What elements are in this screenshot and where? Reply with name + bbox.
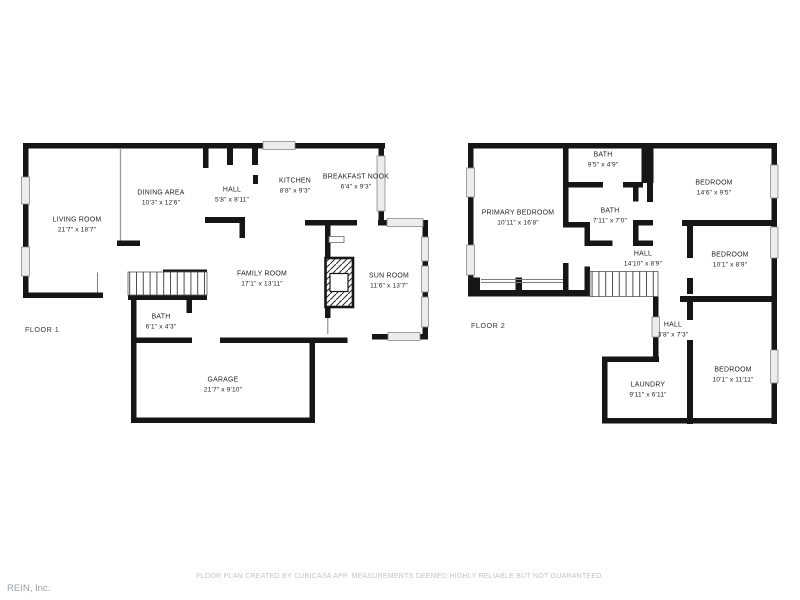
footer-disclaimer: FLOOR PLAN CREATED BY CUBICASA APP. MEAS… bbox=[0, 573, 800, 580]
floor-2-label: FLOOR 2 bbox=[471, 321, 505, 330]
room-name: LAUNDRY bbox=[629, 380, 666, 390]
room-dimensions: 10'1" x 8'9" bbox=[711, 261, 748, 270]
room-label: HALL14'10" x 8'9" bbox=[624, 249, 662, 268]
room-dimensions: 11'6" x 13'7" bbox=[369, 282, 409, 291]
room-name: BEDROOM bbox=[695, 178, 732, 188]
room-label: BATH7'11" x 7'0" bbox=[593, 206, 627, 225]
room-name: DINING AREA bbox=[137, 188, 184, 198]
room-label: GARAGE21'7" x 9'10" bbox=[204, 375, 242, 394]
room-name: HALL bbox=[215, 185, 249, 195]
floor-1-label: FLOOR 1 bbox=[25, 325, 59, 334]
room-label: SUN ROOM11'6" x 13'7" bbox=[369, 271, 409, 290]
room-label: FAMILY ROOM17'1" x 13'11" bbox=[237, 269, 287, 288]
room-label: PRIMARY BEDROOM10'11" x 16'8" bbox=[482, 208, 554, 227]
room-name: FAMILY ROOM bbox=[237, 269, 287, 279]
room-dimensions: 21'7" x 9'10" bbox=[204, 386, 242, 395]
fireplace-box bbox=[330, 274, 348, 292]
room-dimensions: 10'11" x 16'8" bbox=[482, 219, 554, 228]
room-name: PRIMARY BEDROOM bbox=[482, 208, 554, 218]
room-dimensions: 5'8" x 8'11" bbox=[215, 196, 249, 205]
room-name: SUN ROOM bbox=[369, 271, 409, 281]
room-dimensions: 17'1" x 13'11" bbox=[237, 280, 287, 289]
room-label: DINING AREA10'3" x 12'6" bbox=[137, 188, 184, 207]
floor-1-stairs bbox=[128, 272, 207, 295]
room-name: BATH bbox=[146, 312, 177, 322]
room-label: BEDROOM10'1" x 11'11" bbox=[712, 365, 753, 384]
room-dimensions: 9'11" x 6'11" bbox=[629, 391, 666, 400]
room-name: LIVING ROOM bbox=[53, 215, 102, 225]
room-label: BEDROOM10'1" x 8'9" bbox=[711, 250, 748, 269]
room-name: GARAGE bbox=[204, 375, 242, 385]
room-label: BEDROOM14'6" x 9'5" bbox=[695, 178, 732, 197]
room-name: BREAKFAST NOOK bbox=[323, 172, 389, 182]
room-dimensions: 3'8" x 7'3" bbox=[658, 331, 689, 340]
room-dimensions: 14'6" x 9'5" bbox=[695, 189, 732, 198]
room-dimensions: 14'10" x 8'9" bbox=[624, 260, 662, 269]
floorplan-page: LIVING ROOM21'7" x 18'7"DINING AREA10'3"… bbox=[0, 0, 800, 600]
room-name: BEDROOM bbox=[712, 365, 753, 375]
room-dimensions: 21'7" x 18'7" bbox=[53, 226, 102, 235]
rein-logo-text: REIN, Inc. bbox=[7, 583, 50, 594]
room-name: HALL bbox=[658, 320, 689, 330]
room-label: LAUNDRY9'11" x 6'11" bbox=[629, 380, 666, 399]
room-label: LIVING ROOM21'7" x 18'7" bbox=[53, 215, 102, 234]
room-dimensions: 10'1" x 11'11" bbox=[712, 376, 753, 385]
room-dimensions: 6'4" x 9'3" bbox=[323, 183, 389, 192]
room-dimensions: 7'11" x 7'0" bbox=[593, 217, 627, 226]
room-label: HALL3'8" x 7'3" bbox=[658, 320, 689, 339]
room-name: BATH bbox=[593, 206, 627, 216]
floor-1-windows bbox=[22, 142, 429, 341]
floorplan-drawing bbox=[0, 0, 800, 600]
room-name: KITCHEN bbox=[279, 176, 311, 186]
sunroom-door-panel bbox=[329, 237, 344, 243]
room-label: BREAKFAST NOOK6'4" x 9'3" bbox=[323, 172, 389, 191]
room-name: BATH bbox=[588, 150, 619, 160]
room-label: BATH9'5" x 4'9" bbox=[588, 150, 619, 169]
room-dimensions: 9'5" x 4'9" bbox=[588, 161, 619, 170]
floor-2-stairs bbox=[590, 272, 658, 297]
room-label: BATH6'1" x 4'3" bbox=[146, 312, 177, 331]
room-dimensions: 8'8" x 9'3" bbox=[279, 187, 311, 196]
room-name: BEDROOM bbox=[711, 250, 748, 260]
room-label: KITCHEN8'8" x 9'3" bbox=[279, 176, 311, 195]
room-label: HALL5'8" x 8'11" bbox=[215, 185, 249, 204]
room-name: HALL bbox=[624, 249, 662, 259]
room-dimensions: 6'1" x 4'3" bbox=[146, 323, 177, 332]
room-dimensions: 10'3" x 12'6" bbox=[137, 199, 184, 208]
